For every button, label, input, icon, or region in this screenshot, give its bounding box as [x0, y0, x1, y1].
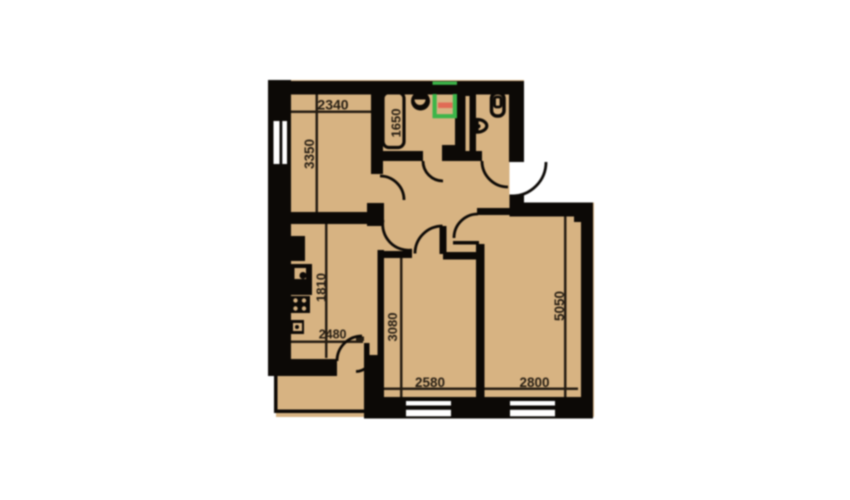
svg-text:1810: 1810 [314, 273, 329, 302]
svg-text:2800: 2800 [519, 375, 549, 390]
svg-text:1650: 1650 [389, 109, 404, 138]
svg-text:2580: 2580 [415, 375, 445, 390]
svg-text:2480: 2480 [319, 328, 347, 342]
svg-text:3350: 3350 [302, 139, 317, 169]
svg-text:5050: 5050 [552, 291, 567, 321]
svg-text:2340: 2340 [317, 97, 348, 113]
svg-text:3080: 3080 [385, 313, 400, 342]
